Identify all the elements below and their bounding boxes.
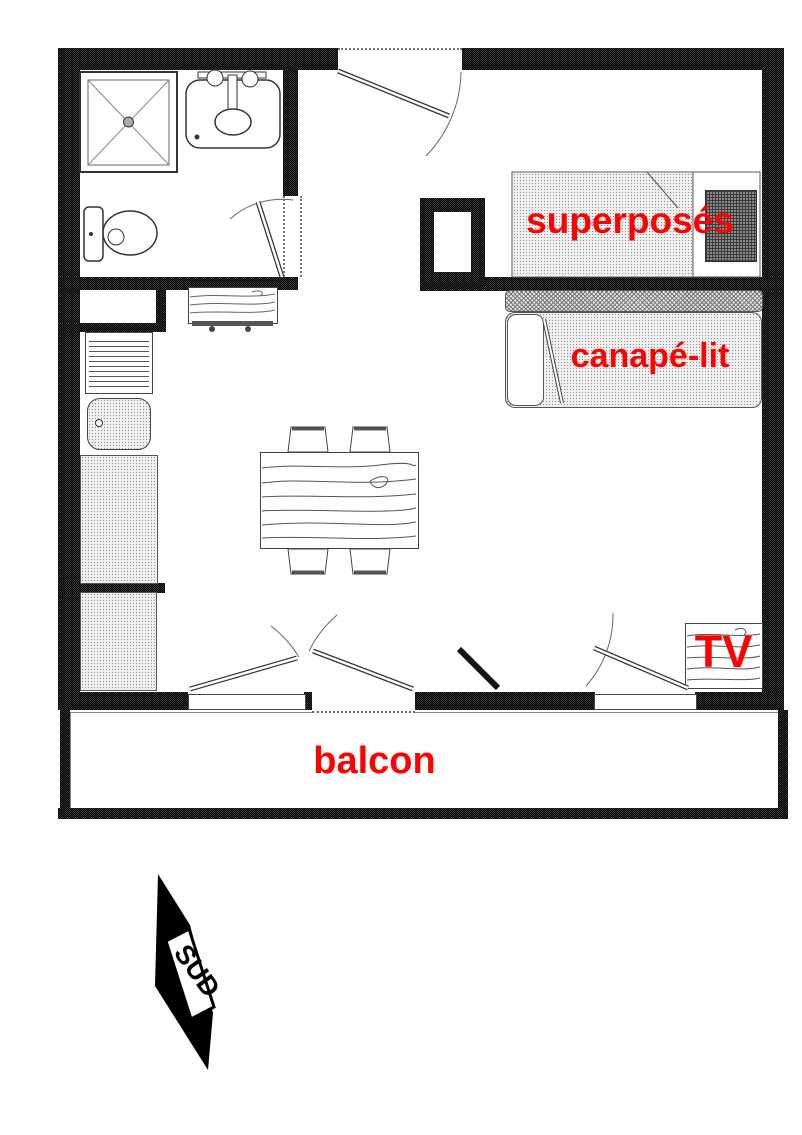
wall-break-mark: [459, 649, 498, 688]
bathroom-sink-icon: [186, 70, 280, 148]
dining-table-woodgrain: [262, 463, 416, 538]
compass-south-arrow: SUD: [155, 874, 226, 1070]
balcony-right-door-swing: [586, 613, 688, 688]
shower-icon: [80, 72, 177, 172]
floor-plan: SUD superposés canapé-lit TV balcon: [0, 0, 802, 1135]
entrance-door-swing: [338, 71, 461, 156]
linework-layer: SUD: [0, 0, 802, 1135]
sofa-bed-label: canapé-lit: [540, 339, 760, 373]
balcony-french-door-swing: [190, 615, 413, 689]
dresser-woodgrain: [190, 291, 275, 332]
toilet-icon: [84, 207, 157, 261]
balcony-label: balcon: [277, 742, 472, 780]
bunk-beds-label: superposés: [500, 202, 760, 239]
bathroom-door-swing: [230, 199, 293, 277]
tv-label: TV: [685, 629, 762, 674]
sink-drain-icon: [96, 420, 103, 427]
chair-icons: [288, 427, 390, 574]
